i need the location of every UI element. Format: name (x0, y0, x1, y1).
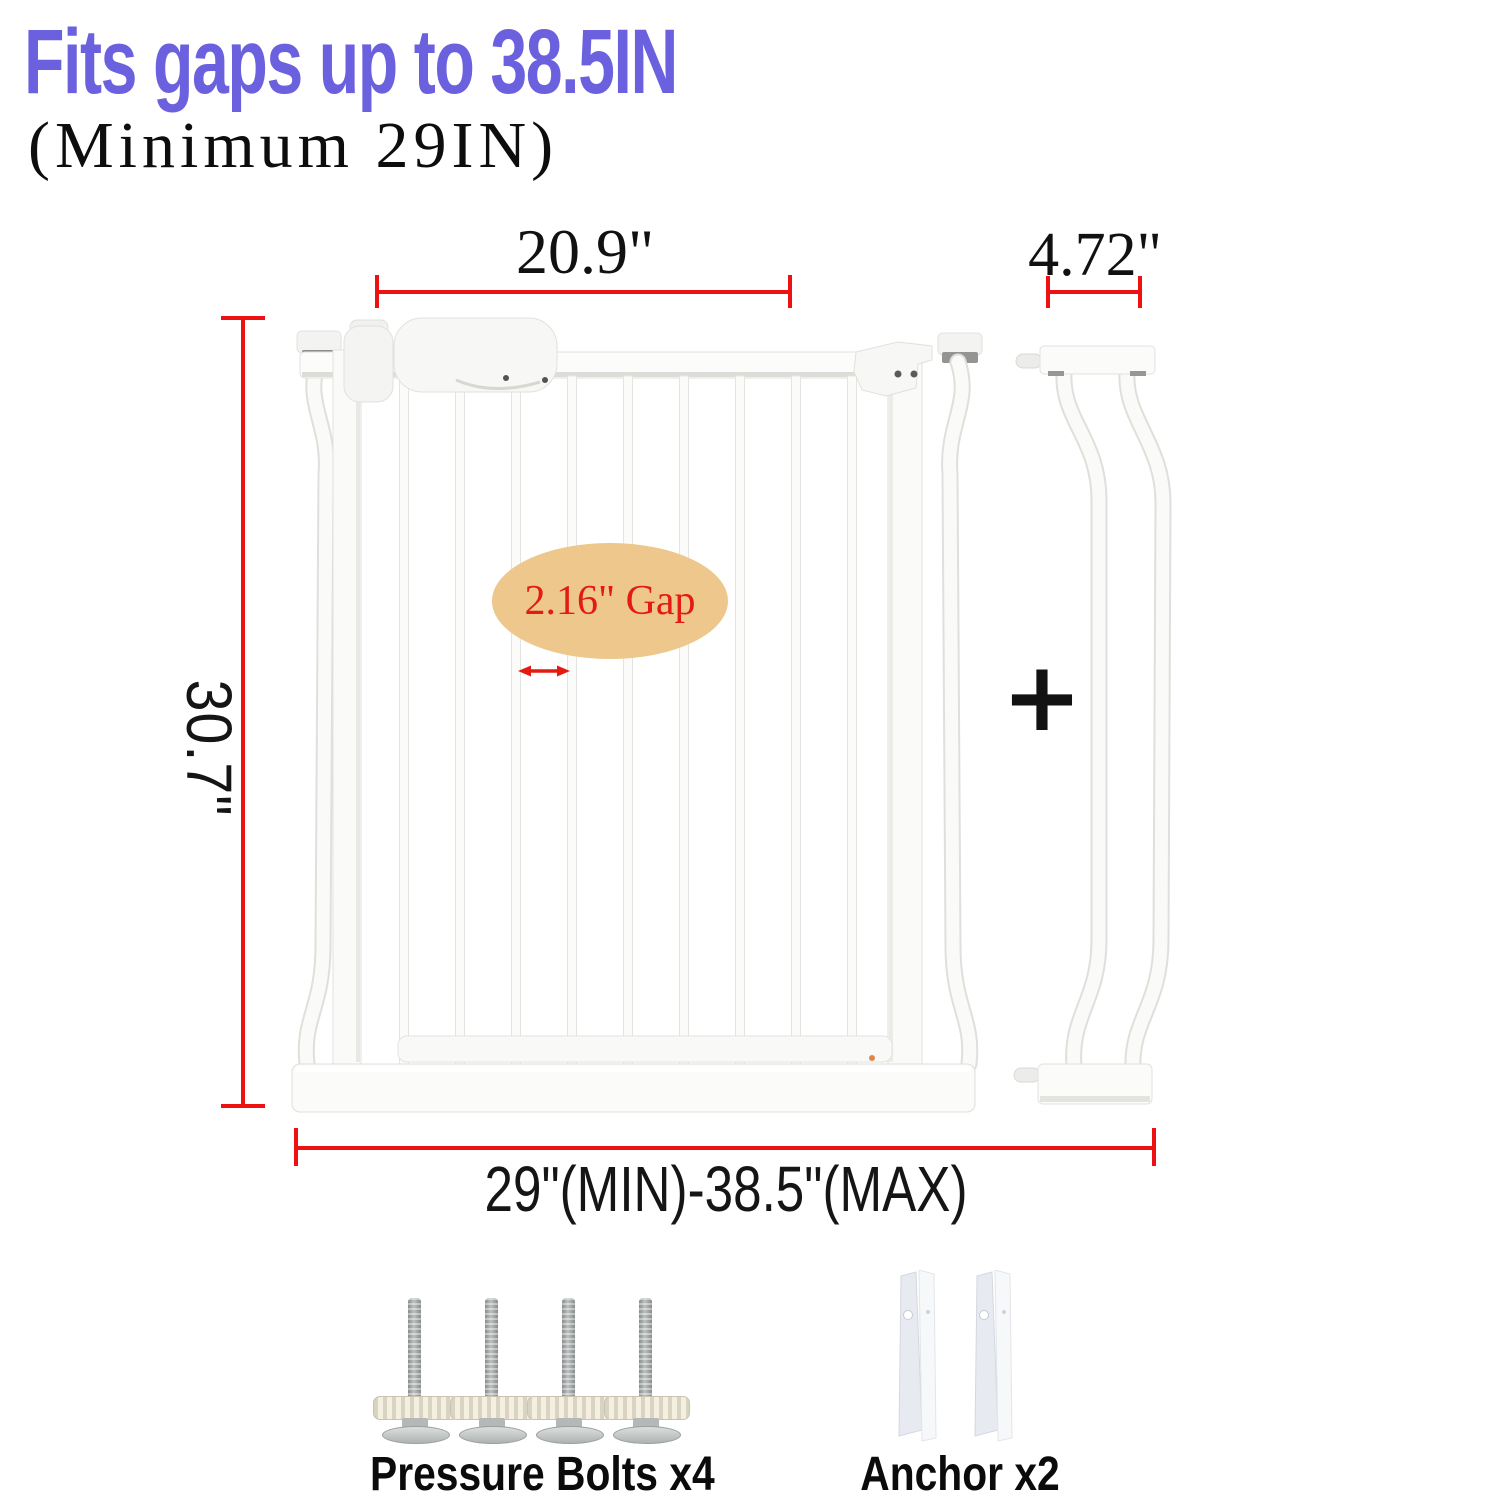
extension-width-tick-right (1138, 276, 1142, 308)
gate-illustration (288, 316, 988, 1122)
fit-range-tick-left (294, 1128, 298, 1166)
extension-bottom-block (1014, 1064, 1152, 1104)
page-subtitle: (Minimum 29IN) (28, 108, 928, 188)
pressure-frame-right-tube (950, 362, 970, 1064)
pressure-frame-left-tube (306, 362, 326, 1064)
extension-top-bar (1016, 346, 1155, 376)
gate-bottom-rail (292, 1064, 975, 1112)
pressure-bolts-label: Pressure Bolts x4 (370, 1450, 710, 1500)
gate-width-tick-right (788, 275, 792, 308)
gap-callout: 2.16" Gap (492, 543, 728, 659)
wall-pad-right (938, 333, 982, 355)
extension-width-dimension-line (1048, 290, 1142, 294)
extension-width-label: 4.72" (1010, 226, 1180, 284)
fit-range-label: 29"(MIN)-38.5"(MAX) (446, 1156, 1006, 1222)
gate-height-tick-top (221, 316, 265, 320)
gate-width-label: 20.9" (380, 222, 790, 282)
page-title: Fits gaps up to 38.5IN (24, 10, 744, 100)
fit-range-dimension-line (296, 1146, 1156, 1150)
anchor-bracket (895, 1270, 941, 1445)
extension-width-tick-left (1046, 276, 1050, 308)
bolt-foot (382, 1426, 450, 1444)
fit-range-tick-right (1152, 1128, 1156, 1166)
gate-handle (344, 318, 557, 402)
gate-height-tick-bottom (221, 1104, 265, 1108)
gate-bars (400, 376, 857, 1064)
pressure-bolt (601, 1292, 691, 1444)
gate-width-dimension-line (377, 290, 790, 294)
door-bottom-bar (398, 1036, 892, 1062)
plus-icon: + (996, 645, 1088, 750)
gate-height-label: 30.7" (181, 649, 237, 847)
anchor-bracket (971, 1270, 1017, 1445)
gap-callout-label: 2.16" Gap (524, 577, 695, 625)
gap-width-arrow-icon (518, 662, 570, 680)
gate-width-tick-left (375, 275, 379, 308)
product-infographic: Fits gaps up to 38.5IN (Minimum 29IN) 20… (0, 0, 1500, 1500)
anchors-label: Anchor x2 (816, 1450, 1105, 1500)
door-right-stile (888, 358, 922, 1064)
